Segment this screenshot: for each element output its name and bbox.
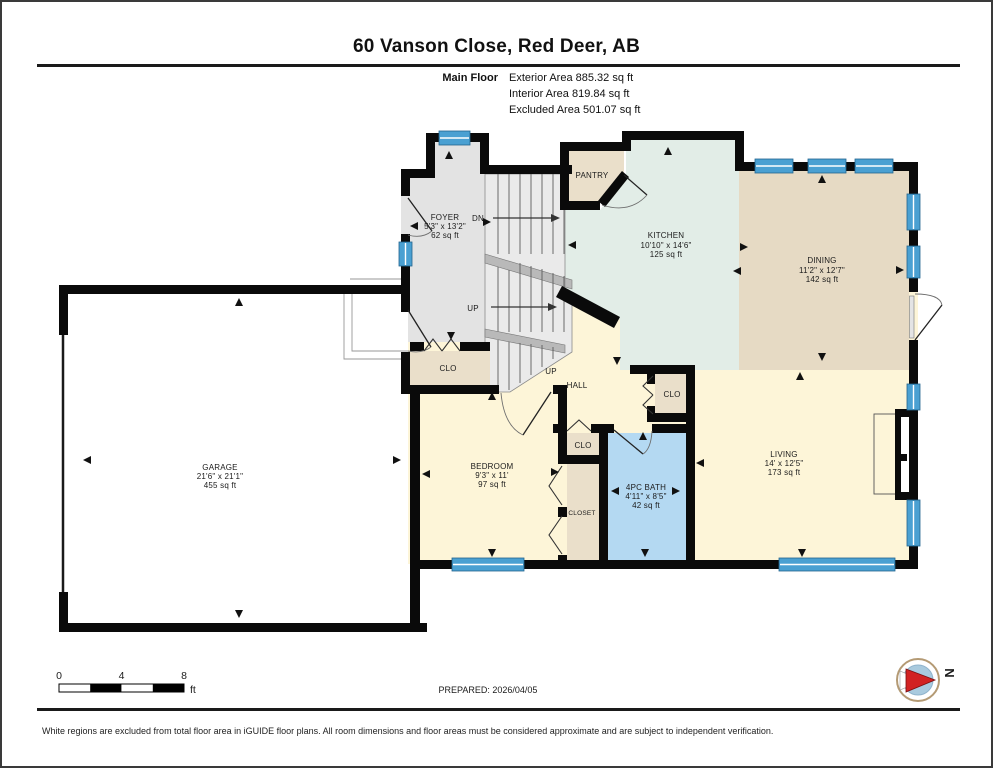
disclaimer-text: White regions are excluded from total fl… bbox=[42, 726, 773, 736]
garage-name: GARAGE bbox=[202, 463, 237, 472]
bedroom-area: 97 sq ft bbox=[478, 480, 506, 489]
prepared-date: PREPARED: 2026/04/05 bbox=[439, 685, 538, 695]
compass-icon: N bbox=[897, 659, 957, 701]
mid-closet-name: CLO bbox=[574, 441, 591, 450]
kitchen-dims: 10'10" x 14'6" bbox=[640, 241, 691, 250]
bath-name: 4PC BATH bbox=[626, 483, 666, 492]
bedroom-closet-name: CLOSET bbox=[568, 510, 595, 517]
porch-steps bbox=[350, 279, 403, 286]
bedroom-dims: 9'3" x 11' bbox=[475, 471, 509, 480]
bath-dims: 4'11" x 8'5" bbox=[625, 492, 666, 501]
patio-door-arc bbox=[915, 294, 942, 305]
dining-dims: 11'2" x 12'7" bbox=[799, 266, 845, 275]
compass-north-label: N bbox=[942, 668, 957, 677]
living-name: LIVING bbox=[770, 450, 797, 459]
scale-bar: 0 4 8 ft bbox=[56, 670, 196, 696]
foyer-closet-name: CLO bbox=[439, 364, 456, 373]
hall-closet-name: CLO bbox=[663, 390, 680, 399]
garage-area: 455 sq ft bbox=[204, 481, 237, 490]
patio-door-leaf bbox=[915, 305, 942, 340]
floorplan-page: 60 Vanson Close, Red Deer, AB Main Floor… bbox=[0, 0, 993, 768]
kitchen-area: 125 sq ft bbox=[650, 250, 683, 259]
stairs-up-label-1: UP bbox=[467, 304, 479, 313]
fireplace bbox=[874, 409, 918, 500]
pantry-name: PANTRY bbox=[576, 171, 609, 180]
scale-0: 0 bbox=[56, 670, 62, 682]
foyer-name: FOYER bbox=[431, 213, 460, 222]
dining-area: 142 sq ft bbox=[806, 275, 839, 284]
scale-unit: ft bbox=[190, 684, 196, 696]
bath-area: 42 sq ft bbox=[632, 501, 660, 510]
floorplan-drawing: FOYER 5'3" x 13'2" 62 sq ft PANTRY KITCH… bbox=[2, 2, 993, 768]
patio-door-slab bbox=[910, 296, 915, 338]
hall-name: HALL bbox=[567, 381, 588, 390]
foyer-dims: 5'3" x 13'2" bbox=[424, 222, 466, 231]
foyer-area: 62 sq ft bbox=[431, 231, 459, 240]
bedroom-name: BEDROOM bbox=[471, 462, 514, 471]
garage-dims: 21'6" x 21'1" bbox=[197, 472, 243, 481]
stairs-up-label-2: UP bbox=[545, 367, 557, 376]
footer-divider bbox=[37, 708, 960, 711]
scale-4: 4 bbox=[119, 670, 125, 682]
living-dims: 14' x 12'5" bbox=[765, 459, 804, 468]
garage-floor bbox=[68, 294, 408, 623]
scale-8: 8 bbox=[181, 670, 187, 682]
living-area: 173 sq ft bbox=[768, 468, 801, 477]
stairs-down-label: DN bbox=[472, 214, 484, 223]
kitchen-name: KITCHEN bbox=[648, 231, 685, 240]
dining-name: DINING bbox=[807, 256, 836, 265]
room-living: LIVING 14' x 12'5" 173 sq ft bbox=[765, 450, 804, 477]
